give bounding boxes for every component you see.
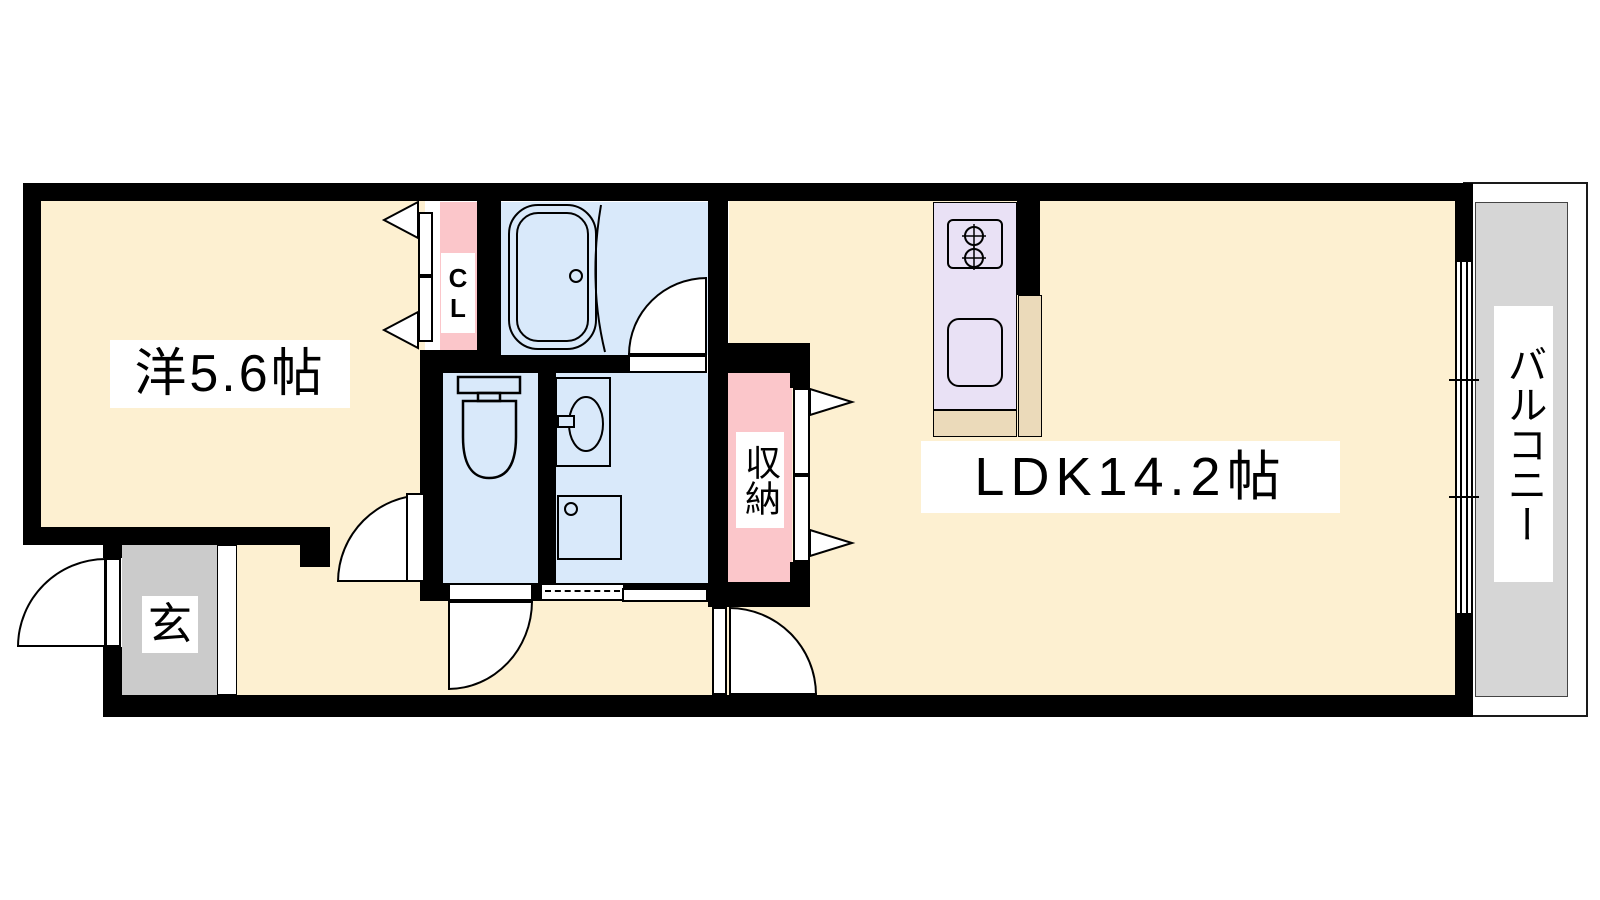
toilet-icon xyxy=(458,377,520,478)
storage-label: 収納 xyxy=(736,432,784,528)
fixtures-overlay xyxy=(0,0,1600,900)
floor-plan: 洋5.6帖 LDK14.2帖 CL 収納 バルコニー 玄 xyxy=(0,0,1600,900)
balcony-label: バルコニー xyxy=(1494,306,1553,582)
stove-burners-icon xyxy=(962,224,986,270)
closet-fold-triangle-top-icon xyxy=(384,202,418,238)
ldk-label: LDK14.2帖 xyxy=(921,441,1340,513)
closet-fold-triangle-bottom-icon xyxy=(384,312,418,348)
storage-fold-triangle-top-icon xyxy=(810,389,852,415)
closet-label: CL xyxy=(441,253,475,333)
entrance-label: 玄 xyxy=(142,596,198,653)
western-room-label: 洋5.6帖 xyxy=(110,340,350,408)
storage-fold-triangle-bottom-icon xyxy=(810,530,852,556)
washbasin-icon xyxy=(556,378,610,466)
bath-partition-curve xyxy=(595,205,605,352)
